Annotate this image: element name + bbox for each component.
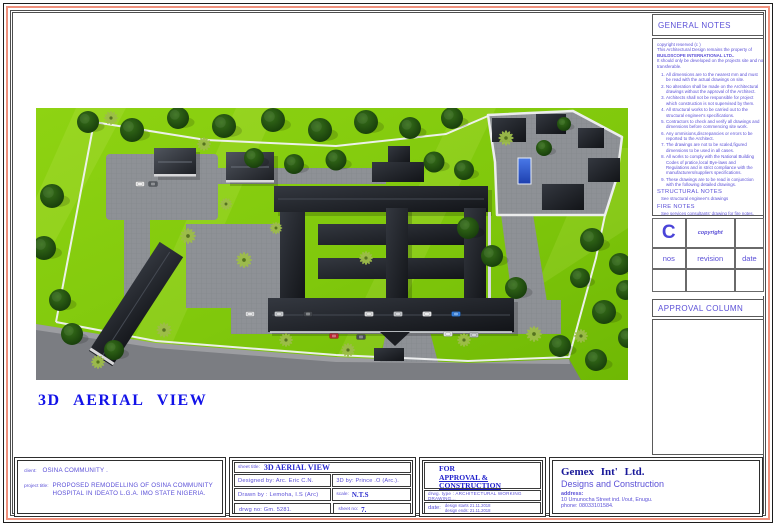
company-name: Gemex Int' Ltd. [561, 466, 751, 478]
copyright-label-cell: copyright [686, 218, 735, 248]
aerial-render-3d [36, 108, 628, 380]
general-notes-title: GENERAL NOTES [658, 21, 731, 30]
copyright-symbol-cell: C [652, 218, 686, 248]
scale-label: scale: [336, 492, 349, 497]
approval-column-header: APPROVAL COLUMN [652, 299, 764, 317]
client-value: OSINA COMMUNITY . [43, 467, 109, 474]
sheet-info-block: sheet title: 3D AERIAL VIEW Designed by:… [229, 457, 416, 517]
approval-column-box [652, 319, 764, 455]
notes-list: All dimensions are to the nearest mm and… [666, 72, 760, 188]
empty-cell [652, 269, 686, 292]
company-phone: phone: 08033101584. [561, 503, 751, 509]
sheet-no-label: sheet no: [338, 507, 358, 512]
client-label: client: [24, 469, 37, 474]
date-header-cell: date [735, 248, 764, 269]
drawn-by: Drawn by : Lemoha, I.S (Arc) [238, 492, 318, 498]
general-notes-body: copyright reserved (c )This Architectura… [652, 38, 764, 216]
date-label: date: [428, 505, 441, 511]
outbuilding [374, 348, 404, 361]
general-notes-header: GENERAL NOTES [652, 14, 764, 36]
revision-table: C copyright nos revision date [652, 218, 764, 296]
swimming-pool [518, 158, 531, 184]
revision-header-cell: revision [686, 248, 735, 269]
client-block: client: OSINA COMMUNITY . project title:… [14, 457, 226, 517]
fire-notes-title: FIRE NOTES [657, 204, 760, 211]
drwg-type: drwg. type : ARCHITECTURAL WORKING DRAWI… [428, 491, 540, 501]
threed-by: 3D by: Prince .O (Arc.). [336, 478, 399, 484]
empty-cell [735, 218, 764, 248]
design-end-date: design ends: 21.11.2018 [445, 508, 491, 513]
project-title-label: project title: [24, 484, 49, 489]
fire-notes-text: See services consultants' drawing for fi… [661, 211, 760, 216]
structural-notes-title: STRUCTURAL NOTES [657, 189, 760, 196]
designed-by: Designed by: Arc. Eric C.N. [238, 478, 314, 484]
company-block: Gemex Int' Ltd. Designs and Construction… [549, 457, 763, 517]
copyright-paragraph: copyright reserved (c )This Architectura… [657, 42, 760, 69]
sheet-title-value: 3D AERIAL VIEW [264, 463, 330, 472]
view-caption: 3D AERIAL VIEW [38, 392, 207, 410]
company-tagline: Designs and Construction [561, 479, 751, 489]
approval-column-title: APPROVAL COLUMN [658, 304, 743, 313]
project-title-value: PROPOSED REMODELLING OF OSINA COMMUNITY … [53, 482, 216, 498]
approval-stamp-block: FORAPPROVAL &CONSTRUCTION drwg. type : A… [419, 457, 546, 517]
nos-header-cell: nos [652, 248, 686, 269]
sheet-no-value: 7. [361, 506, 366, 514]
drwg-no: drwg no: Gm. 5281. [239, 507, 292, 513]
empty-cell [735, 269, 764, 292]
scale-value: N.T.S [352, 491, 369, 499]
structural-notes-text: See structural engineer's drawings [661, 196, 760, 201]
sheet-title-label: sheet title: [238, 465, 260, 470]
empty-cell [686, 269, 735, 292]
approval-stamp-text: FORAPPROVAL &CONSTRUCTION [439, 465, 501, 491]
drawing-sheet: 3D AERIAL VIEW GENERAL NOTES copyright r… [0, 0, 776, 526]
